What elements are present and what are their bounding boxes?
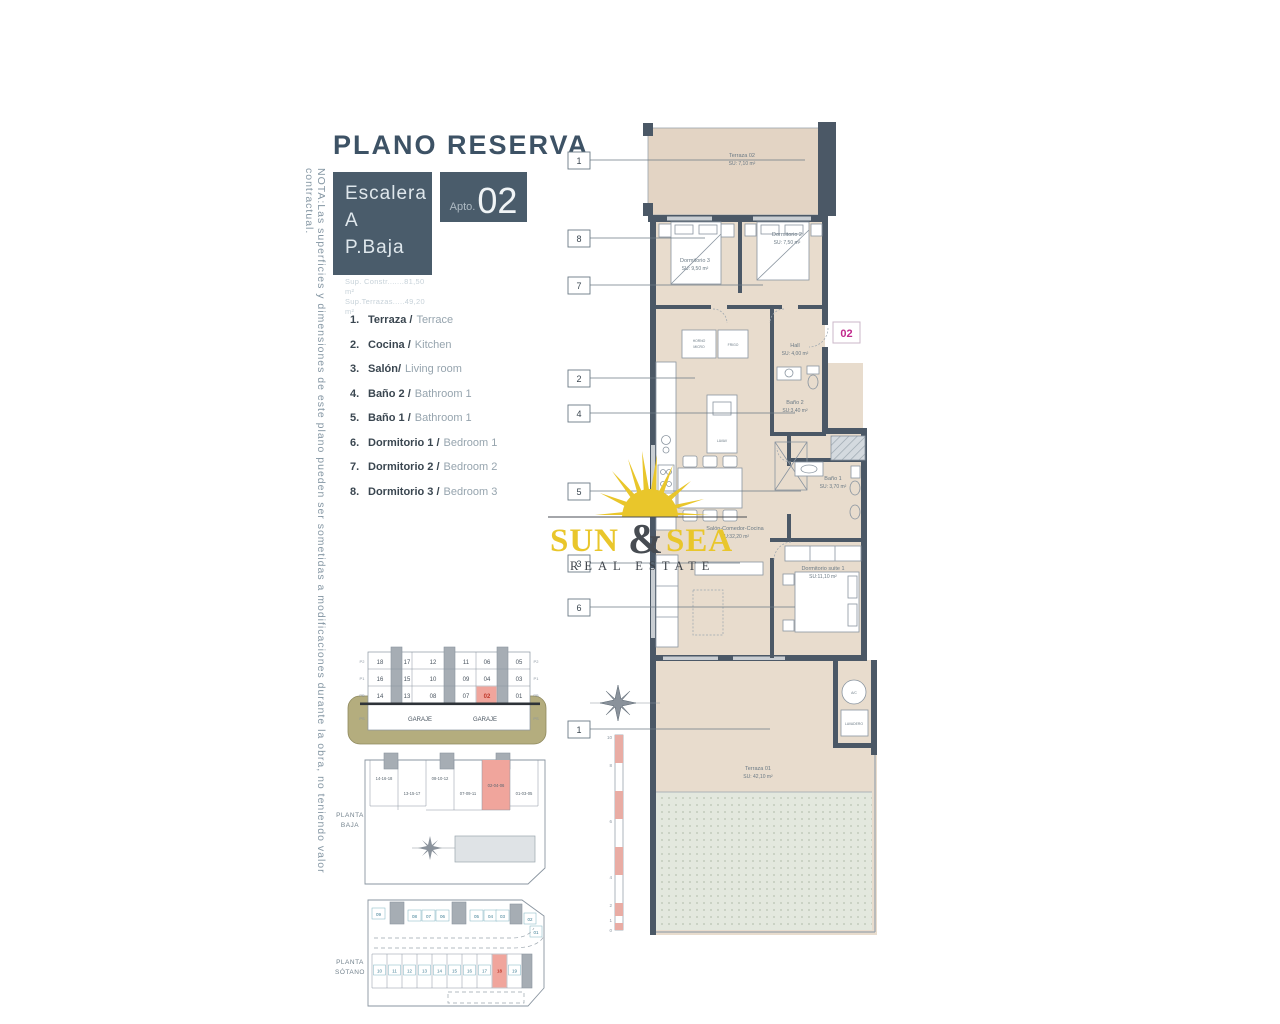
block-label: 08-10-12 — [432, 776, 449, 781]
storage-num: 09 — [376, 912, 382, 917]
legend-num: 8. — [350, 486, 368, 498]
section-cell: 11 — [463, 660, 470, 666]
storage-num: 08 — [412, 914, 418, 919]
section-cell: 10 — [430, 677, 437, 683]
parking-num: 16 — [467, 969, 473, 974]
apto-number: 02 — [477, 183, 517, 219]
legend-es: Salón/ — [368, 363, 401, 375]
unit-badge-number: 02 — [840, 328, 852, 340]
legend-item-bano2: 4. Baño 2 / Bathroom 1 — [350, 388, 560, 400]
legend-es: Terraza / — [368, 314, 412, 326]
logo-word-sun: SUN — [550, 523, 619, 559]
parking-num: 17 — [482, 969, 488, 974]
dorm3-area: SU: 9,50 m² — [682, 266, 709, 272]
scale-tick: 1 — [609, 918, 612, 923]
unit-badge: 02 — [833, 322, 860, 343]
parking-num: 14 — [437, 969, 443, 974]
legend-num: 3. — [350, 363, 368, 375]
legend-item-dorm2: 7. Dormitorio 2 / Bedroom 2 — [350, 461, 560, 473]
dorm3-name: Dormitorio 3 — [680, 258, 710, 264]
legend-es: Dormitorio 2 / — [368, 461, 440, 473]
section-cell: 05 — [516, 660, 523, 666]
pool — [455, 836, 535, 862]
parking-num: 10 — [377, 969, 383, 974]
block-label: 13-15-17 — [404, 791, 421, 796]
floor-label: PS — [359, 716, 365, 721]
parking-num: 19 — [512, 969, 518, 974]
dorm2-name: Dormitorio 2 — [772, 232, 802, 238]
terraza01-area: SU: 42,10 m² — [743, 774, 773, 780]
hall-area: SU: 4,00 m² — [782, 351, 809, 357]
vertical-note: NOTA:Las superficies y dimensiones de es… — [303, 168, 327, 883]
block-label: 01-03-05 — [516, 791, 533, 796]
dorm2-area: SU: 7,50 m² — [774, 240, 801, 246]
planta-label: P.Baja — [345, 234, 432, 261]
legend-item-salon: 3. Salón/ Living room — [350, 363, 560, 375]
escalera-box: Escalera A P.Baja Sup. Constr.......81,5… — [333, 172, 432, 275]
legend-en: Bedroom 3 — [444, 486, 498, 498]
bano1-area: SU: 3,70 m² — [820, 484, 847, 490]
legend-num: 1. — [350, 314, 368, 326]
legend-en: Kitchen — [415, 339, 452, 351]
floor-label: PB — [533, 693, 539, 698]
floor-label: P1 — [534, 676, 540, 681]
suite-area: SU:11,10 m² — [809, 574, 837, 580]
section-cell: 04 — [484, 677, 491, 683]
scale-tick: 2 — [609, 903, 612, 908]
legend-item-dorm1: 6. Dormitorio 1 / Bedroom 1 — [350, 437, 560, 449]
section-cell: 14 — [377, 694, 384, 700]
apto-box: Apto. 02 — [440, 172, 527, 222]
legend-es: Baño 1 / — [368, 412, 411, 424]
lavadero-label: LAVADERO — [845, 722, 863, 726]
legend-num: 4. — [350, 388, 368, 400]
block-label: 07-09-11 — [460, 791, 477, 796]
scale-tick: 0 — [609, 928, 612, 933]
planta-sotano-diagram: PLANTA SÓTANO 09 08 07 06 05 04 03 — [335, 900, 544, 1006]
storage-num: 02 — [527, 917, 533, 922]
section-cell: 16 — [377, 677, 384, 683]
section-cell: 15 — [404, 677, 411, 683]
legend-es: Cocina / — [368, 339, 411, 351]
section-cell: 08 — [430, 694, 437, 700]
plano-reserva-page: NOTA:Las superficies y dimensiones de es… — [0, 0, 1280, 1024]
horno-label: HORNO — [693, 339, 706, 343]
ac-label: A/C — [851, 691, 857, 695]
floor-label: P1 — [360, 676, 366, 681]
legend-en: Bedroom 2 — [444, 461, 498, 473]
legend-num: 7. — [350, 461, 368, 473]
floor-label: PS — [533, 716, 539, 721]
callout-1-bottom: 1 — [576, 725, 581, 735]
garaje-label: GARAJE — [473, 717, 497, 723]
storage-num: 03 — [500, 914, 506, 919]
bano1-name: Baño 1 — [824, 476, 841, 482]
legend-num: 5. — [350, 412, 368, 424]
bano2-name: Baño 2 — [786, 400, 803, 406]
section-cell: 09 — [463, 677, 470, 683]
page-title: PLANO RESERVA — [333, 130, 589, 161]
scale-tick: 4 — [609, 875, 612, 880]
scale-tick: 8 — [609, 763, 612, 768]
parking-num: 11 — [392, 969, 397, 974]
legend-item-bano1: 5. Baño 1 / Bathroom 1 — [350, 412, 560, 424]
planta-baja-diagram: 14-16-18 13-15-17 08-10-12 07-09-11 02-0… — [336, 753, 545, 884]
escalera-label: Escalera A — [345, 180, 432, 234]
storage-num: 06 — [440, 914, 446, 919]
planta-baja-label: PLANTA — [336, 812, 364, 819]
scale-tick: 6 — [609, 819, 612, 824]
section-cell: 07 — [463, 694, 470, 700]
section-cell: 13 — [404, 694, 411, 700]
section-cell: 18 — [377, 660, 384, 666]
building-diagrams: 18 17 12 11 06 05 16 15 10 09 04 03 14 1… — [330, 640, 560, 1024]
section-cell: 06 — [484, 660, 491, 666]
micro-label: MICRO — [693, 345, 705, 349]
legend-en: Bathroom 1 — [415, 388, 472, 400]
scale-tick: 10 — [607, 735, 613, 740]
sun-and-sea-logo: SUN & SEA REAL ESTATE — [540, 435, 755, 580]
parking-num: 13 — [422, 969, 428, 974]
storage-num: 07 — [426, 914, 432, 919]
section-cell: 12 — [430, 660, 437, 666]
building-section-diagram: 18 17 12 11 06 05 16 15 10 09 04 03 14 1… — [348, 647, 546, 744]
storage-num: 04 — [488, 914, 494, 919]
section-cell-highlight: 02 — [484, 694, 491, 700]
section-cell: 01 — [516, 694, 523, 700]
garaje-label: GARAJE — [408, 717, 432, 723]
hall-name: Hall — [790, 343, 799, 349]
storage-num: 05 — [474, 914, 480, 919]
suite-name: Dormitorio suite 1 — [801, 566, 844, 572]
legend-num: 2. — [350, 339, 368, 351]
sup-constr: Sup. Constr.......81,50 m² — [345, 277, 432, 297]
section-cell: 03 — [516, 677, 523, 683]
legend-en: Terrace — [416, 314, 453, 326]
logo-word-sea: SEA — [666, 523, 733, 559]
scale-bar: 10 8 6 4 2 1 0 — [607, 735, 623, 933]
terraza02-name: Terraza 02 — [729, 153, 755, 159]
section-cell: 17 — [404, 660, 411, 666]
frigo-label: FRIGO — [728, 343, 739, 347]
legend-en: Bathroom 1 — [415, 412, 472, 424]
legend-es: Baño 2 / — [368, 388, 411, 400]
parking-num: 15 — [452, 969, 458, 974]
callout-6: 6 — [576, 603, 581, 613]
sunburst-icon — [548, 451, 747, 517]
legend-num: 6. — [350, 437, 368, 449]
legend-item-cocina: 2. Cocina / Kitchen — [350, 339, 560, 351]
callout-1-top: 1 — [576, 156, 581, 166]
legend-item-terraza: 1. Terraza / Terrace — [350, 314, 560, 326]
block-label-highlight: 02-04-06 — [488, 783, 505, 788]
legend-es: Dormitorio 1 / — [368, 437, 440, 449]
legend-en: Living room — [405, 363, 462, 375]
logo-tagline: REAL ESTATE — [570, 559, 715, 573]
floor-label: P2 — [360, 659, 366, 664]
legend-es: Dormitorio 3 / — [368, 486, 440, 498]
callout-8: 8 — [576, 234, 581, 244]
parking-num: 12 — [407, 969, 413, 974]
storage-num: 01 — [533, 930, 539, 935]
floor-label: P2 — [534, 659, 540, 664]
callout-7: 7 — [576, 281, 581, 291]
logo-ampersand: & — [628, 517, 663, 563]
terraza02-area: SU: 7,10 m² — [729, 161, 756, 167]
legend-item-dorm3: 8. Dormitorio 3 / Bedroom 3 — [350, 486, 560, 498]
apto-prefix: Apto. — [450, 201, 476, 213]
planta-baja-label: BAJA — [341, 822, 359, 829]
parking-num-highlight: 18 — [497, 969, 503, 974]
block-label: 14-16-18 — [376, 776, 393, 781]
room-legend: 1. Terraza / Terrace 2. Cocina / Kitchen… — [350, 314, 560, 510]
floor-label: PB — [359, 693, 365, 698]
planta-sotano-label: PLANTA — [336, 959, 364, 966]
callout-4: 4 — [576, 409, 581, 419]
callout-2: 2 — [576, 374, 581, 384]
planta-sotano-label: SÓTANO — [335, 967, 365, 976]
terraza01-name: Terraza 01 — [745, 766, 771, 772]
legend-en: Bedroom 1 — [444, 437, 498, 449]
compass-rose-icon — [590, 685, 660, 721]
